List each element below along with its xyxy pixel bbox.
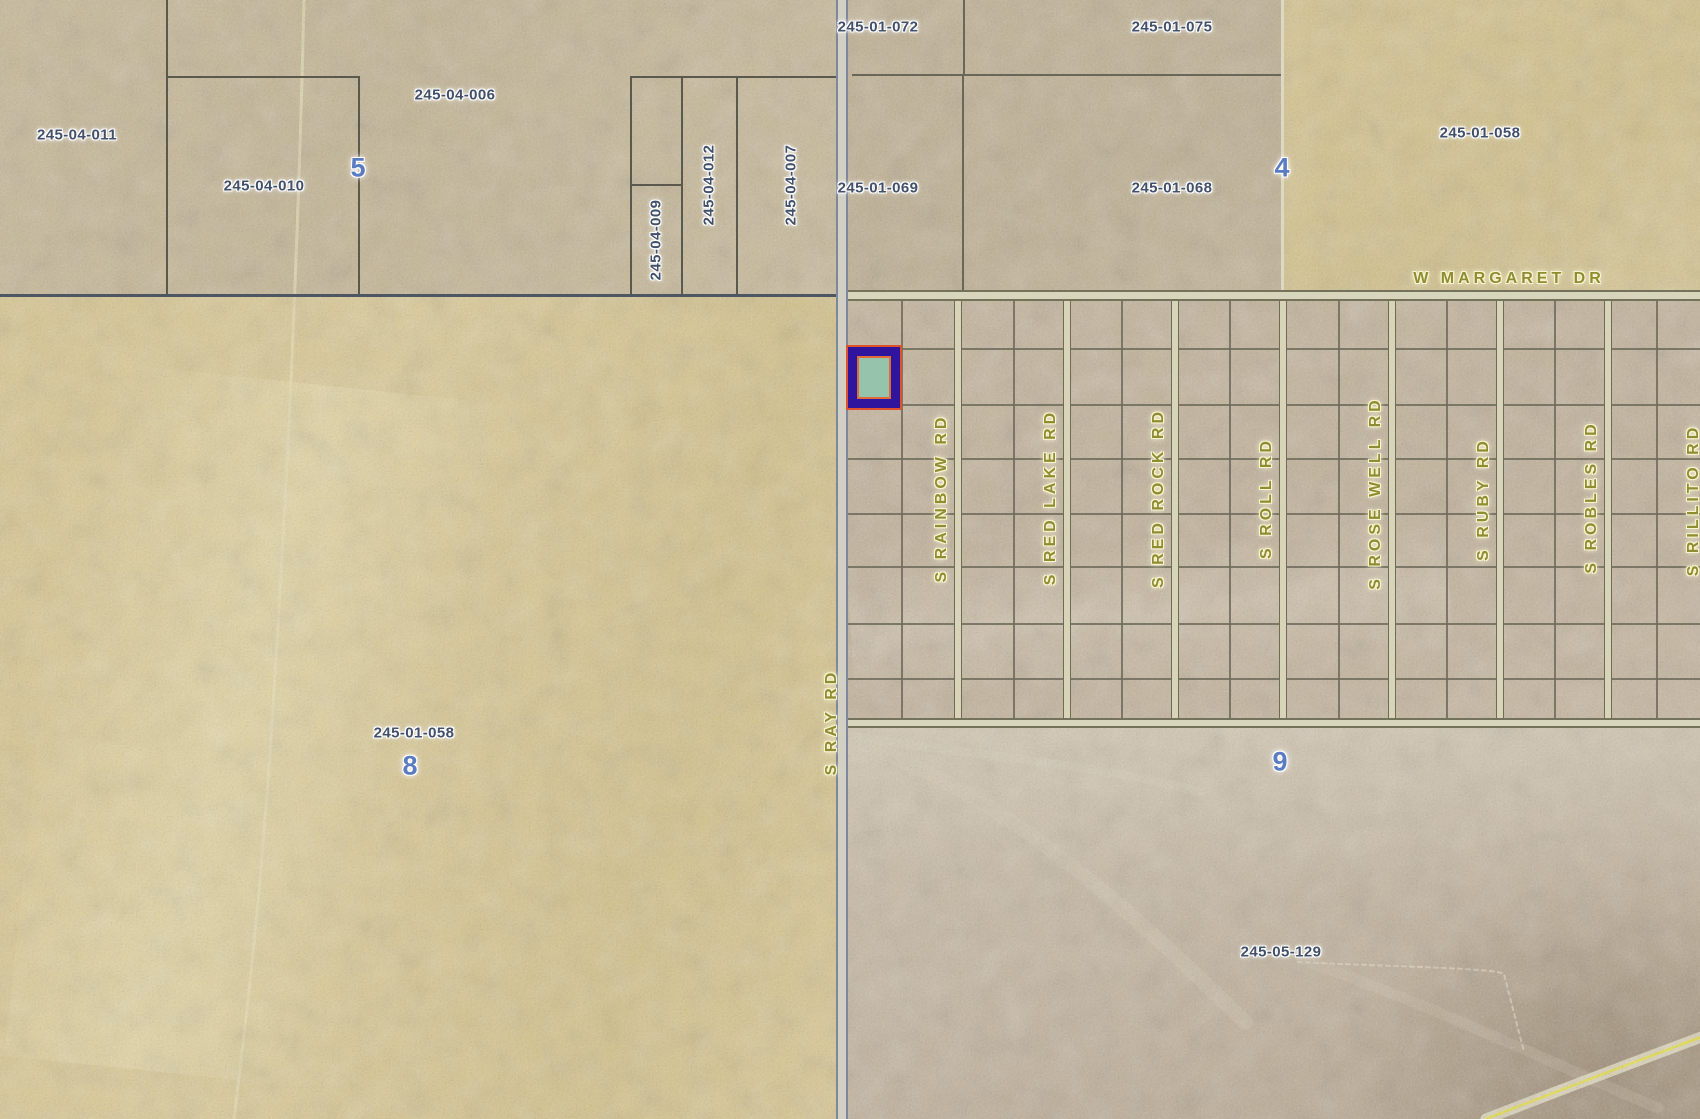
road-name-label: S RED LAKE RD xyxy=(1042,409,1060,585)
lot-line-horizontal xyxy=(1071,623,1171,625)
lot-line-horizontal xyxy=(962,678,1063,680)
parcel-line xyxy=(630,184,683,186)
lot-line-horizontal xyxy=(1396,678,1496,680)
lot-line-vertical xyxy=(1229,301,1231,718)
parcel-label: 245-04-006 xyxy=(415,87,496,104)
lot-line-horizontal xyxy=(1396,623,1496,625)
road-subdivision-street-4[interactable] xyxy=(1388,301,1396,718)
parcel-line xyxy=(630,76,632,296)
lot-line-horizontal xyxy=(1179,623,1279,625)
parcel-label: 245-01-075 xyxy=(1132,19,1213,36)
section-4-parcels-terrain xyxy=(846,0,1282,296)
lot-line-horizontal xyxy=(1612,678,1700,680)
road-name-label: S RILLITO RD xyxy=(1685,424,1700,577)
lot-line-horizontal xyxy=(1396,404,1496,406)
parcel-line xyxy=(630,76,846,78)
lot-line-horizontal xyxy=(1612,348,1700,350)
lot-line-vertical xyxy=(1554,301,1556,718)
lot-line-horizontal xyxy=(962,348,1063,350)
road-w-margaret-dr[interactable] xyxy=(848,290,1700,301)
parcel-line xyxy=(358,76,360,296)
road-name-label: S ROSE WELL RD xyxy=(1367,396,1385,590)
lot-line-horizontal xyxy=(1179,566,1279,568)
parcel-map-canvas[interactable]: 245-04-011245-04-010245-04-006245-04-009… xyxy=(0,0,1700,1119)
parcel-line xyxy=(166,76,360,78)
selected-parcel-highlight[interactable] xyxy=(846,345,902,410)
lot-line-horizontal xyxy=(1071,678,1171,680)
lot-line-vertical xyxy=(1656,301,1658,718)
parcel-label: 245-01-072 xyxy=(838,19,919,36)
section-edge-light xyxy=(1281,0,1284,296)
section-5-terrain xyxy=(0,0,846,296)
road-name-label: S RAINBOW RD xyxy=(933,414,951,583)
parcel-label: 245-01-069 xyxy=(838,180,919,197)
road-subdivision-street-2[interactable] xyxy=(1171,301,1179,718)
road-subdivision-street-6[interactable] xyxy=(1604,301,1612,718)
parcel-line xyxy=(852,74,1282,76)
lot-line-vertical xyxy=(1121,301,1123,718)
lot-line-horizontal xyxy=(1504,623,1604,625)
section-number-label: 9 xyxy=(1272,747,1287,778)
road-subdivision-street-1[interactable] xyxy=(1063,301,1071,718)
parcel-line xyxy=(962,74,964,296)
lot-line-horizontal xyxy=(848,678,954,680)
lot-line-horizontal xyxy=(1612,623,1700,625)
road-name-label: S RAY RD xyxy=(823,669,841,776)
parcel-label: 245-01-068 xyxy=(1132,180,1213,197)
lot-line-horizontal xyxy=(1287,348,1388,350)
parcel-label: 245-04-009 xyxy=(648,200,665,281)
section-4-east-terrain xyxy=(1282,0,1700,296)
parcel-line xyxy=(736,76,738,296)
road-subdivision-street-0[interactable] xyxy=(954,301,962,718)
parcel-line xyxy=(963,0,965,76)
lot-line-horizontal xyxy=(1504,348,1604,350)
lot-line-horizontal xyxy=(1179,404,1279,406)
parcel-label: 245-04-010 xyxy=(224,178,305,195)
lot-line-horizontal xyxy=(962,404,1063,406)
parcel-label: 245-04-011 xyxy=(37,127,117,144)
section-number-label: 4 xyxy=(1274,153,1289,184)
lot-line-horizontal xyxy=(962,623,1063,625)
section-number-label: 8 xyxy=(402,751,417,782)
road-name-label: S ROLL RD xyxy=(1258,437,1276,559)
lot-line-horizontal xyxy=(848,623,954,625)
lot-line-horizontal xyxy=(1071,404,1171,406)
selected-parcel-fill xyxy=(857,356,891,399)
lot-line-horizontal xyxy=(1504,404,1604,406)
road-subdivision-south-boundary[interactable] xyxy=(848,718,1700,728)
lot-line-vertical xyxy=(1446,301,1448,718)
road-name-label: S ROBLES RD xyxy=(1583,420,1601,573)
road-subdivision-street-5[interactable] xyxy=(1496,301,1504,718)
lot-line-horizontal xyxy=(1179,348,1279,350)
lot-line-horizontal xyxy=(1287,678,1388,680)
selected-parcel-band xyxy=(848,347,900,408)
section-number-label: 5 xyxy=(350,153,365,184)
parcel-line xyxy=(681,76,683,296)
section-9-hill-shade xyxy=(1330,880,1700,1119)
lot-line-horizontal xyxy=(1396,348,1496,350)
parcel-label: 245-05-129 xyxy=(1241,944,1322,961)
lot-line-horizontal xyxy=(1612,404,1700,406)
road-name-label: S RUBY RD xyxy=(1475,437,1493,561)
lot-line-horizontal xyxy=(1504,678,1604,680)
parcel-label: 245-04-012 xyxy=(701,145,718,226)
parcel-label: 245-01-058 xyxy=(374,725,455,742)
lot-line-vertical xyxy=(1013,301,1015,718)
road-subdivision-street-3[interactable] xyxy=(1279,301,1287,718)
lot-line-horizontal xyxy=(1396,566,1496,568)
parcel-label: 245-01-058 xyxy=(1440,125,1521,142)
road-name-label: W MARGARET DR xyxy=(1413,270,1605,288)
section-line xyxy=(0,294,838,297)
parcel-label: 245-04-007 xyxy=(783,145,800,226)
parcel-line xyxy=(166,0,168,296)
lot-line-horizontal xyxy=(1287,623,1388,625)
road-name-label: S RED ROCK RD xyxy=(1150,408,1168,588)
lot-line-horizontal xyxy=(1179,678,1279,680)
lot-line-horizontal xyxy=(1071,348,1171,350)
lot-line-vertical xyxy=(1338,301,1340,718)
road-s-ray-rd[interactable] xyxy=(836,0,848,1119)
